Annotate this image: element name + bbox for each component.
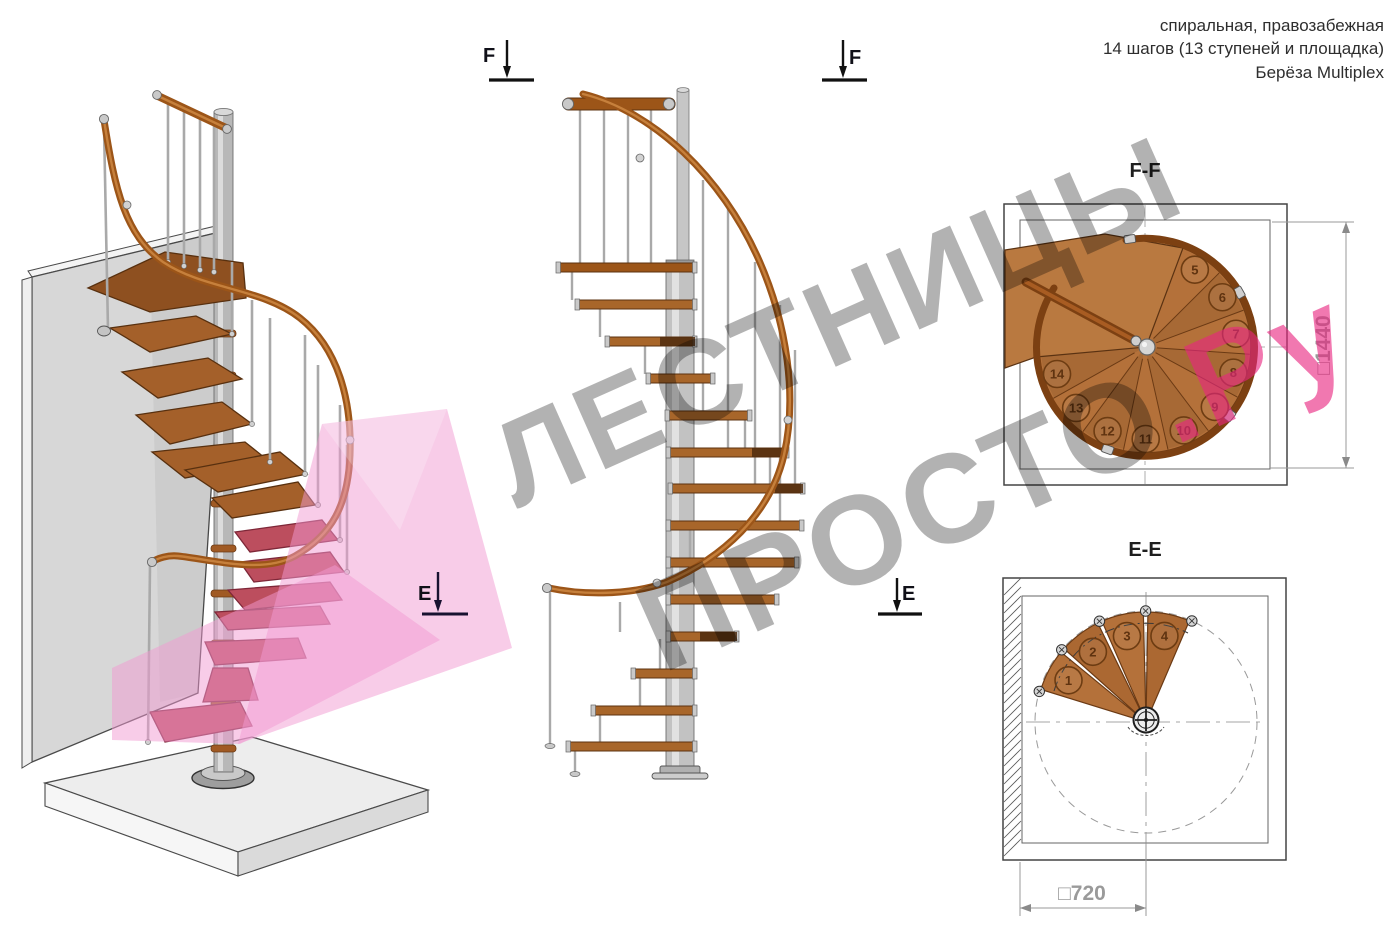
step-elevation	[577, 300, 695, 309]
section-letter: F	[483, 45, 495, 67]
step-end-cap	[556, 262, 561, 273]
hatch-line	[1004, 767, 1021, 784]
step-end-cap	[666, 631, 671, 642]
step-shadow-segment	[700, 632, 737, 641]
handrail-end-cap	[542, 583, 551, 592]
ff-center-ball-highlight	[1142, 342, 1147, 347]
wall-left-edge	[22, 277, 32, 768]
hatch-line	[1004, 578, 1021, 595]
ff-center-ball	[1139, 339, 1155, 355]
hatch-line	[1004, 686, 1021, 703]
view-3d: E	[22, 91, 512, 876]
landing-rail-cap	[663, 98, 674, 109]
step-elevation	[593, 706, 695, 715]
section-marker-f-left: F	[483, 40, 534, 80]
step-number: 13	[1069, 401, 1083, 416]
step-end-cap	[711, 373, 716, 384]
landing-rail-cap	[562, 98, 573, 109]
rod-foot	[197, 267, 202, 272]
plan-ff-title: F-F	[1129, 160, 1160, 182]
step-shadow-segment	[660, 337, 695, 346]
step-shadow-segment	[775, 484, 803, 493]
pole-collar	[211, 545, 236, 552]
step-number: 2	[1089, 644, 1096, 659]
step-number: 8	[1230, 365, 1237, 380]
handrail-joint	[636, 154, 644, 162]
hatch-line	[1004, 677, 1021, 694]
title-line-material: Берёза Multiplex	[1103, 61, 1384, 84]
technical-drawing: E F F	[0, 0, 1400, 940]
section-letter: F	[849, 47, 861, 69]
plan-ee: E-E 1234 □720	[1003, 539, 1286, 916]
step-end-cap	[591, 705, 596, 716]
rod-foot	[229, 331, 234, 336]
step-end-cap	[605, 336, 610, 347]
hatch-line	[1004, 794, 1021, 811]
pole-base-plate	[652, 773, 708, 779]
rod-foot	[181, 263, 186, 268]
hatch-line	[1004, 812, 1021, 829]
hatch-line	[1004, 830, 1021, 847]
handrail-end-cap-top	[99, 114, 108, 123]
ee-dimension: □720	[1020, 845, 1146, 916]
section-letter: E	[418, 583, 431, 605]
handrail-end-cap-bottom	[147, 557, 156, 566]
title-line-steps: 14 шагов (13 ступеней и площадка)	[1103, 37, 1384, 60]
hatch-line	[1004, 623, 1021, 640]
view-elevation	[542, 88, 805, 779]
hatch-line	[1004, 632, 1021, 649]
step-number: 9	[1211, 400, 1218, 415]
step-end-cap	[693, 741, 698, 752]
section-marker-f-right: F	[822, 40, 867, 80]
section-letter: E	[902, 583, 915, 605]
rod-foot	[570, 772, 580, 777]
step-end-cap	[566, 741, 571, 752]
step-elevation	[568, 742, 695, 751]
ff-dimension: □1440	[1270, 222, 1354, 468]
hatch-line	[1004, 605, 1021, 622]
step-end-cap	[666, 557, 671, 568]
hatch-line	[1004, 722, 1021, 739]
rod-foot	[545, 744, 555, 749]
rail-connector	[1124, 234, 1136, 243]
hatch-line	[1004, 839, 1021, 856]
step-number: 14	[1050, 367, 1065, 382]
step-end-cap	[775, 594, 780, 605]
pole-collar	[211, 745, 236, 752]
step-elevation	[668, 521, 802, 530]
step-number: 11	[1139, 432, 1153, 447]
step-axis-cap	[98, 326, 111, 336]
step-elevation	[667, 411, 750, 420]
ee-wall-hatch	[1004, 578, 1021, 856]
step-end-cap	[800, 520, 805, 531]
title-line-type: спиральная, правозабежная	[1103, 14, 1384, 37]
top-rail-cap	[223, 125, 232, 134]
step-end-cap	[693, 668, 698, 679]
step-elevation	[633, 669, 695, 678]
ff-dimension-label: □1440	[1312, 315, 1335, 374]
hatch-line	[1004, 695, 1021, 712]
hatch-line	[1004, 659, 1021, 676]
step-end-cap	[693, 262, 698, 273]
hatch-line	[1004, 785, 1021, 802]
step-number: 10	[1177, 423, 1191, 438]
step-end-cap	[668, 483, 673, 494]
handrail-joint	[123, 201, 131, 209]
hatch-line	[1004, 614, 1021, 631]
plan-ee-title: E-E	[1128, 539, 1161, 561]
top-rail-cap	[153, 91, 162, 100]
pole-top-cap	[214, 108, 233, 115]
step-elevation	[648, 374, 713, 383]
step-number: 5	[1191, 262, 1198, 277]
step-number: 4	[1161, 629, 1169, 644]
section-marker-e-right: E	[878, 578, 922, 614]
step-elevation	[668, 558, 797, 567]
step-end-cap	[646, 373, 651, 384]
step-end-cap	[693, 705, 698, 716]
hatch-line	[1004, 758, 1021, 775]
hatch-line	[1004, 641, 1021, 658]
hatch-line	[1004, 596, 1021, 613]
hatch-line	[1004, 587, 1021, 604]
step-end-cap	[631, 668, 636, 679]
plan-ff: F-F 567891011121314 □1440	[1004, 160, 1354, 485]
step-number: 7	[1232, 326, 1239, 341]
staircase-drawing-page: E F F	[0, 0, 1400, 940]
landing-elevation	[558, 263, 695, 272]
hatch-line	[1004, 749, 1021, 766]
step-end-cap	[666, 447, 671, 458]
hatch-line	[1004, 821, 1021, 838]
step-number: 1	[1065, 673, 1072, 688]
hatch-line	[1004, 740, 1021, 757]
step-end-cap	[666, 594, 671, 605]
step-end-cap	[795, 557, 800, 568]
floor-top	[45, 737, 428, 852]
step-number: 3	[1123, 629, 1130, 644]
rod-foot	[302, 471, 307, 476]
step-number: 12	[1100, 424, 1114, 439]
hatch-line	[1004, 731, 1021, 748]
step-elevation	[668, 595, 777, 604]
ee-dimension-label: □720	[1058, 882, 1106, 905]
handrail-joint	[784, 416, 792, 424]
hatch-line	[1004, 704, 1021, 721]
step-number: 6	[1219, 290, 1226, 305]
rod-foot	[211, 269, 216, 274]
step-end-cap	[693, 299, 698, 310]
hatch-line	[1004, 776, 1021, 793]
hatch-line	[1004, 713, 1021, 730]
hatch-line	[1004, 803, 1021, 820]
drawing-title-block: спиральная, правозабежная 14 шагов (13 с…	[1103, 14, 1384, 84]
hatch-line	[1004, 650, 1021, 667]
step-end-cap	[575, 299, 580, 310]
pole-top-cap-elev	[677, 88, 689, 93]
pole-top-elev	[677, 90, 689, 270]
step-end-cap	[665, 410, 670, 421]
step-end-cap	[748, 410, 753, 421]
handrail-joint	[653, 579, 661, 587]
rod-foot	[267, 459, 272, 464]
hatch-line	[1004, 668, 1021, 685]
step-end-cap	[666, 520, 671, 531]
rod-foot	[249, 421, 254, 426]
